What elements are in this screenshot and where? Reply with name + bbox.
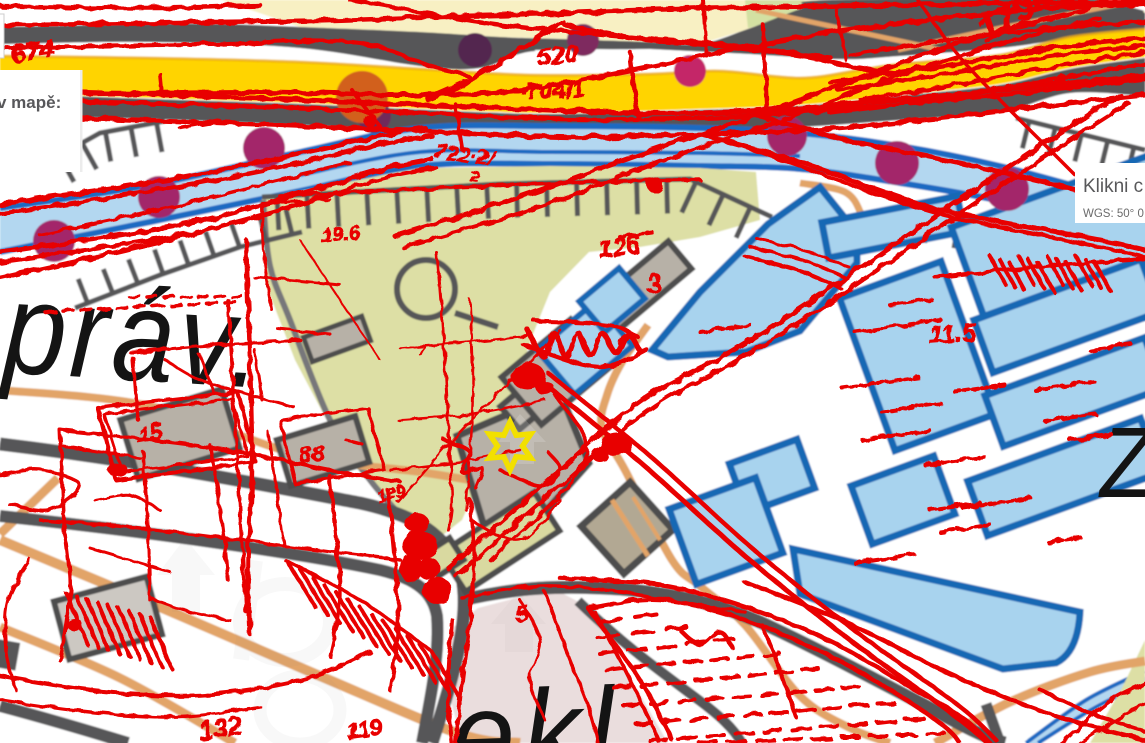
svg-text:19.6: 19.6: [320, 222, 362, 248]
svg-text:126: 126: [597, 230, 643, 264]
svg-text:119: 119: [345, 714, 384, 743]
svg-text:v mapě:: v mapě:: [0, 93, 61, 112]
svg-text:132: 132: [197, 710, 245, 743]
svg-text:Z: Z: [1098, 406, 1145, 518]
svg-text:WGS: 50° 0: WGS: 50° 0: [1083, 208, 1144, 220]
svg-text:674: 674: [9, 33, 57, 69]
svg-text:88: 88: [297, 439, 326, 468]
svg-text:11.5: 11.5: [928, 319, 978, 350]
svg-text:·704/1: ·704/1: [519, 76, 585, 105]
svg-text:520: 520: [536, 40, 581, 72]
svg-text:7: 7: [418, 342, 427, 359]
svg-text:Klikni c: Klikni c: [1083, 176, 1143, 197]
